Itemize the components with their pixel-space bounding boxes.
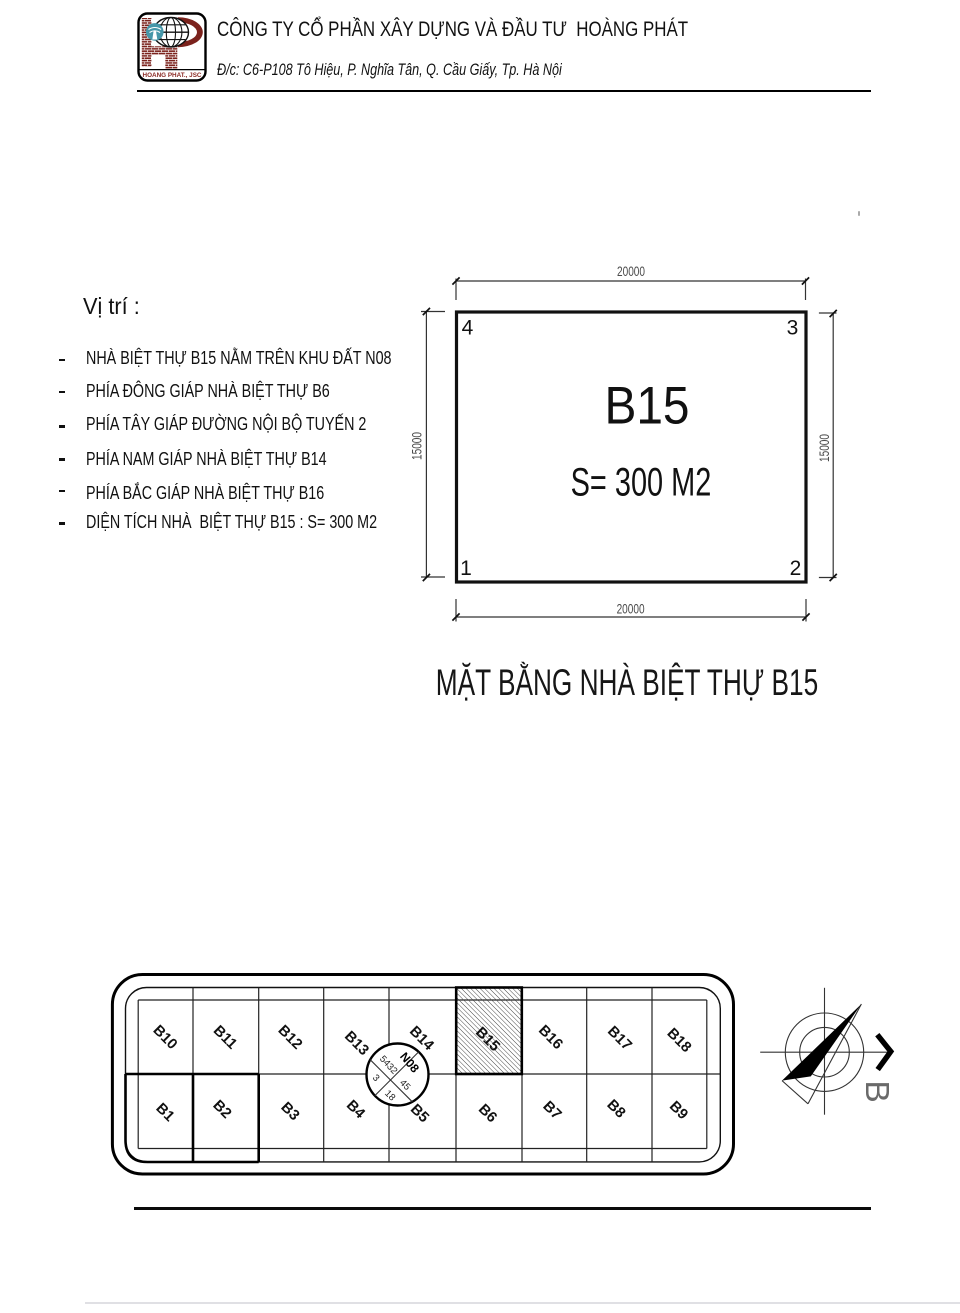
svg-text:B13: B13 bbox=[341, 1028, 372, 1059]
svg-text:B6: B6 bbox=[475, 1101, 500, 1126]
svg-text:B2: B2 bbox=[209, 1097, 234, 1122]
svg-text:B9: B9 bbox=[666, 1098, 691, 1123]
svg-text:B4: B4 bbox=[343, 1097, 368, 1122]
svg-text:B17: B17 bbox=[604, 1023, 635, 1054]
svg-text:B8: B8 bbox=[603, 1097, 628, 1122]
svg-text:B3: B3 bbox=[277, 1099, 302, 1124]
svg-text:3: 3 bbox=[787, 317, 799, 340]
svg-text:15000: 15000 bbox=[817, 434, 833, 462]
svg-text:B12: B12 bbox=[275, 1022, 306, 1053]
svg-text:1: 1 bbox=[460, 557, 472, 580]
svg-text:B10: B10 bbox=[150, 1022, 181, 1053]
svg-text:S= 300 M2: S= 300 M2 bbox=[571, 461, 712, 504]
svg-text:HOANG PHAT., JSC: HOANG PHAT., JSC bbox=[143, 72, 203, 79]
svg-text:B16: B16 bbox=[535, 1022, 566, 1053]
svg-text:B11: B11 bbox=[210, 1023, 240, 1053]
svg-text:2: 2 bbox=[790, 557, 802, 580]
svg-text:B: B bbox=[858, 1080, 895, 1102]
svg-text:4: 4 bbox=[462, 317, 474, 340]
svg-text:B1: B1 bbox=[152, 1100, 177, 1125]
svg-text:15000: 15000 bbox=[409, 432, 425, 460]
svg-text:B18: B18 bbox=[664, 1025, 695, 1056]
svg-text:20000: 20000 bbox=[617, 601, 645, 617]
svg-text:B15: B15 bbox=[604, 376, 689, 435]
svg-text:B7: B7 bbox=[539, 1098, 564, 1123]
svg-text:20000: 20000 bbox=[617, 263, 645, 279]
svg-text:B5: B5 bbox=[407, 1101, 432, 1126]
